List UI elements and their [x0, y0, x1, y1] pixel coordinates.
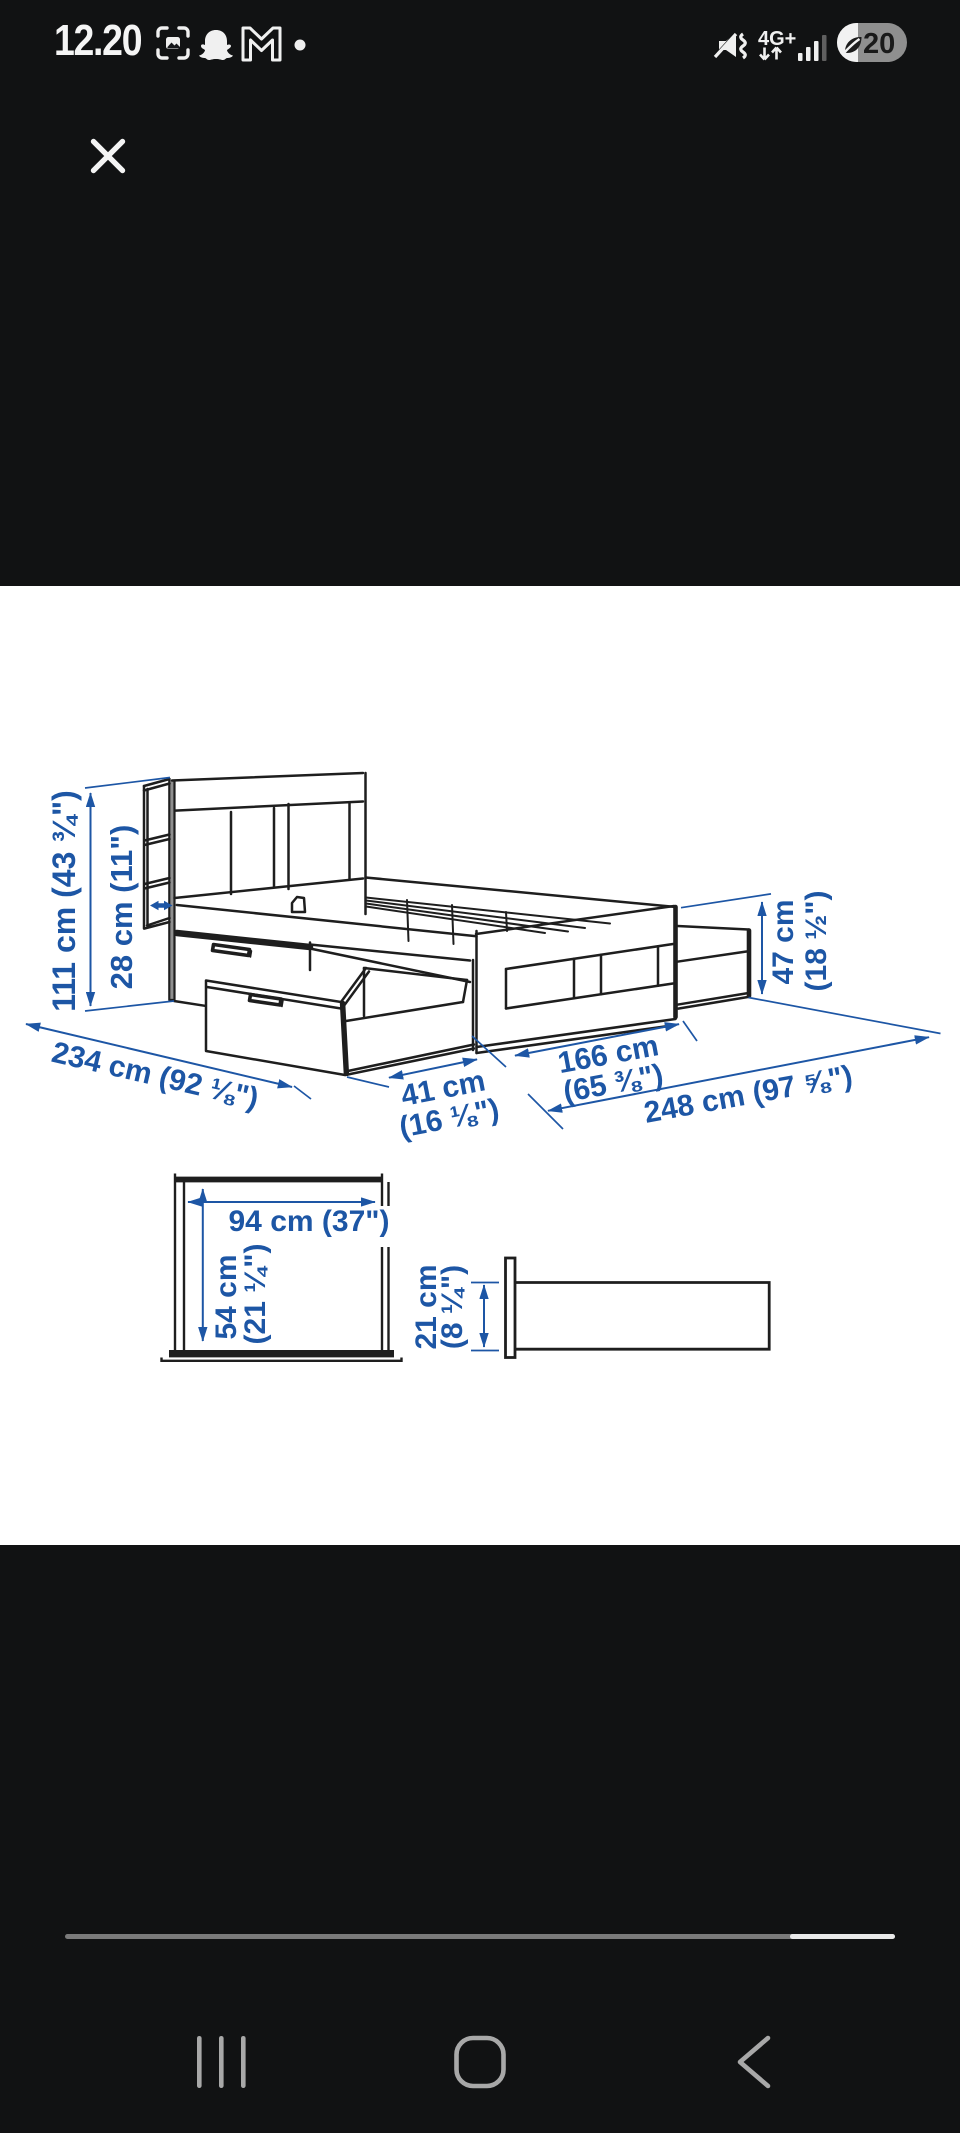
- svg-text:28 cm (11"): 28 cm (11"): [104, 825, 139, 990]
- svg-text:(21 ¼"): (21 ¼"): [239, 1244, 272, 1345]
- svg-text:234 cm (92 ⅛"): 234 cm (92 ⅛"): [49, 1036, 262, 1116]
- svg-text:(18 ½"): (18 ½"): [800, 891, 833, 992]
- svg-text:47 cm: 47 cm: [767, 899, 800, 984]
- svg-text:111 cm (43 ¾"): 111 cm (43 ¾"): [46, 790, 82, 1012]
- svg-text:(8 ¼"): (8 ¼"): [436, 1265, 469, 1349]
- svg-text:248 cm (97 ⅝"): 248 cm (97 ⅝"): [642, 1060, 856, 1130]
- svg-text:94 cm (37"): 94 cm (37"): [229, 1205, 390, 1238]
